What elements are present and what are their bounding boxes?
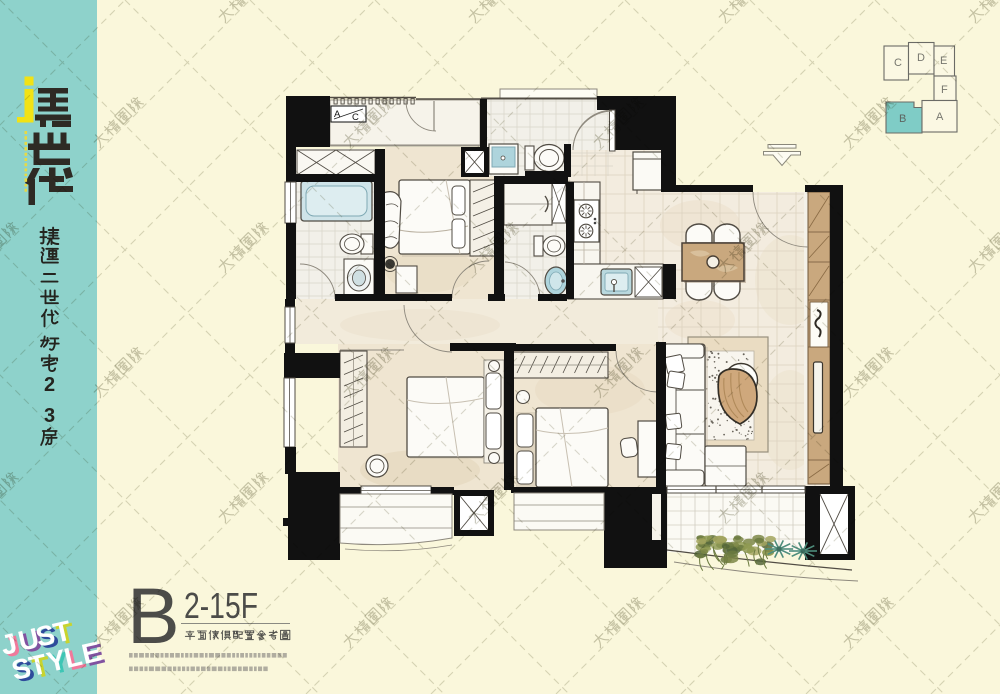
svg-text:C: C bbox=[352, 112, 359, 123]
svg-text:A: A bbox=[936, 111, 944, 123]
svg-text:B: B bbox=[899, 113, 906, 125]
svg-text:2-15F: 2-15F bbox=[184, 585, 258, 626]
svg-text:2: 2 bbox=[44, 374, 55, 396]
svg-text:3: 3 bbox=[44, 405, 55, 427]
svg-text:C: C bbox=[894, 57, 902, 69]
svg-text:A: A bbox=[334, 109, 341, 120]
svg-text:D: D bbox=[917, 52, 925, 64]
svg-text:F: F bbox=[941, 84, 948, 96]
